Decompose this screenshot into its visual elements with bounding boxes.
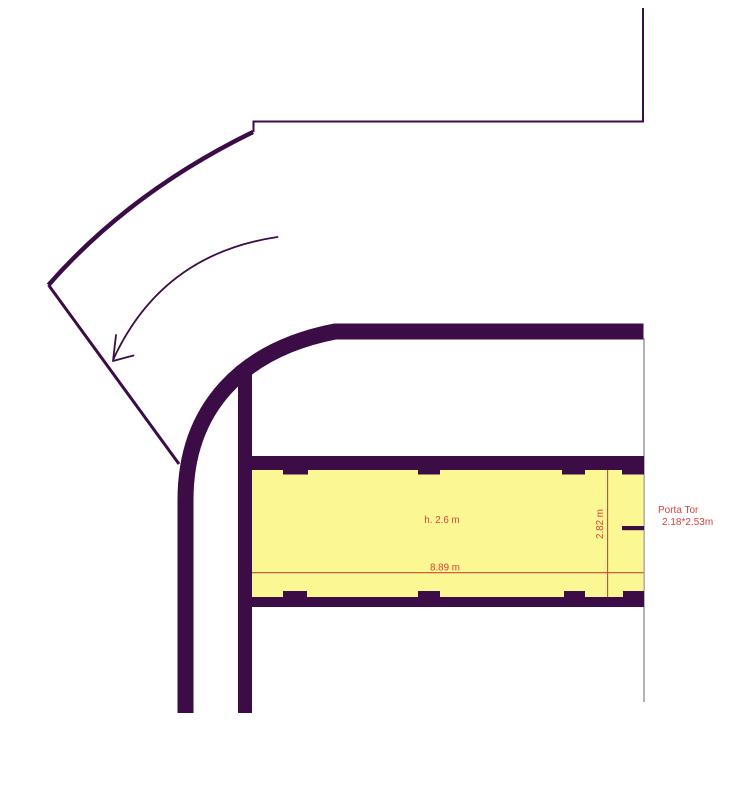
pilaster-top-3	[562, 470, 585, 475]
direction-arrow	[113, 237, 278, 361]
ceiling-height-label: h. 2.6 m	[424, 515, 459, 526]
pilaster-bottom-2	[418, 591, 440, 597]
door-size-label: 2.18*2.53m	[662, 517, 713, 528]
pilaster-top-2	[418, 470, 440, 475]
floor-plan-canvas: h. 2.6 m 8.89 m 2.82 m Porta Tor 2.18*2.…	[0, 0, 755, 800]
width-label: 2.82 m	[595, 509, 606, 539]
direction-arrow-shaft	[114, 237, 278, 359]
site-boundary	[49, 8, 644, 464]
length-label: 8.89 m	[430, 563, 460, 574]
pilaster-bottom-4	[623, 591, 644, 597]
pilaster-top-1	[283, 470, 308, 475]
driveway-outer-curve	[49, 132, 254, 285]
boundary-diagonal-line	[49, 285, 180, 464]
pilaster-top-4	[622, 470, 644, 475]
pilaster-bottom-3	[564, 591, 585, 597]
door-threshold-mark	[622, 526, 644, 530]
door-name-label: Porta Tor	[658, 505, 699, 516]
garage-wall-top	[238, 456, 644, 470]
garage-floor	[252, 460, 644, 600]
boundary-top-line	[254, 8, 644, 132]
pilaster-bottom-1	[283, 591, 307, 597]
floor-plan: h. 2.6 m 8.89 m 2.82 m Porta Tor 2.18*2.…	[0, 0, 755, 800]
ramp-inner-wall	[238, 370, 252, 713]
garage-wall-bottom	[238, 597, 644, 607]
